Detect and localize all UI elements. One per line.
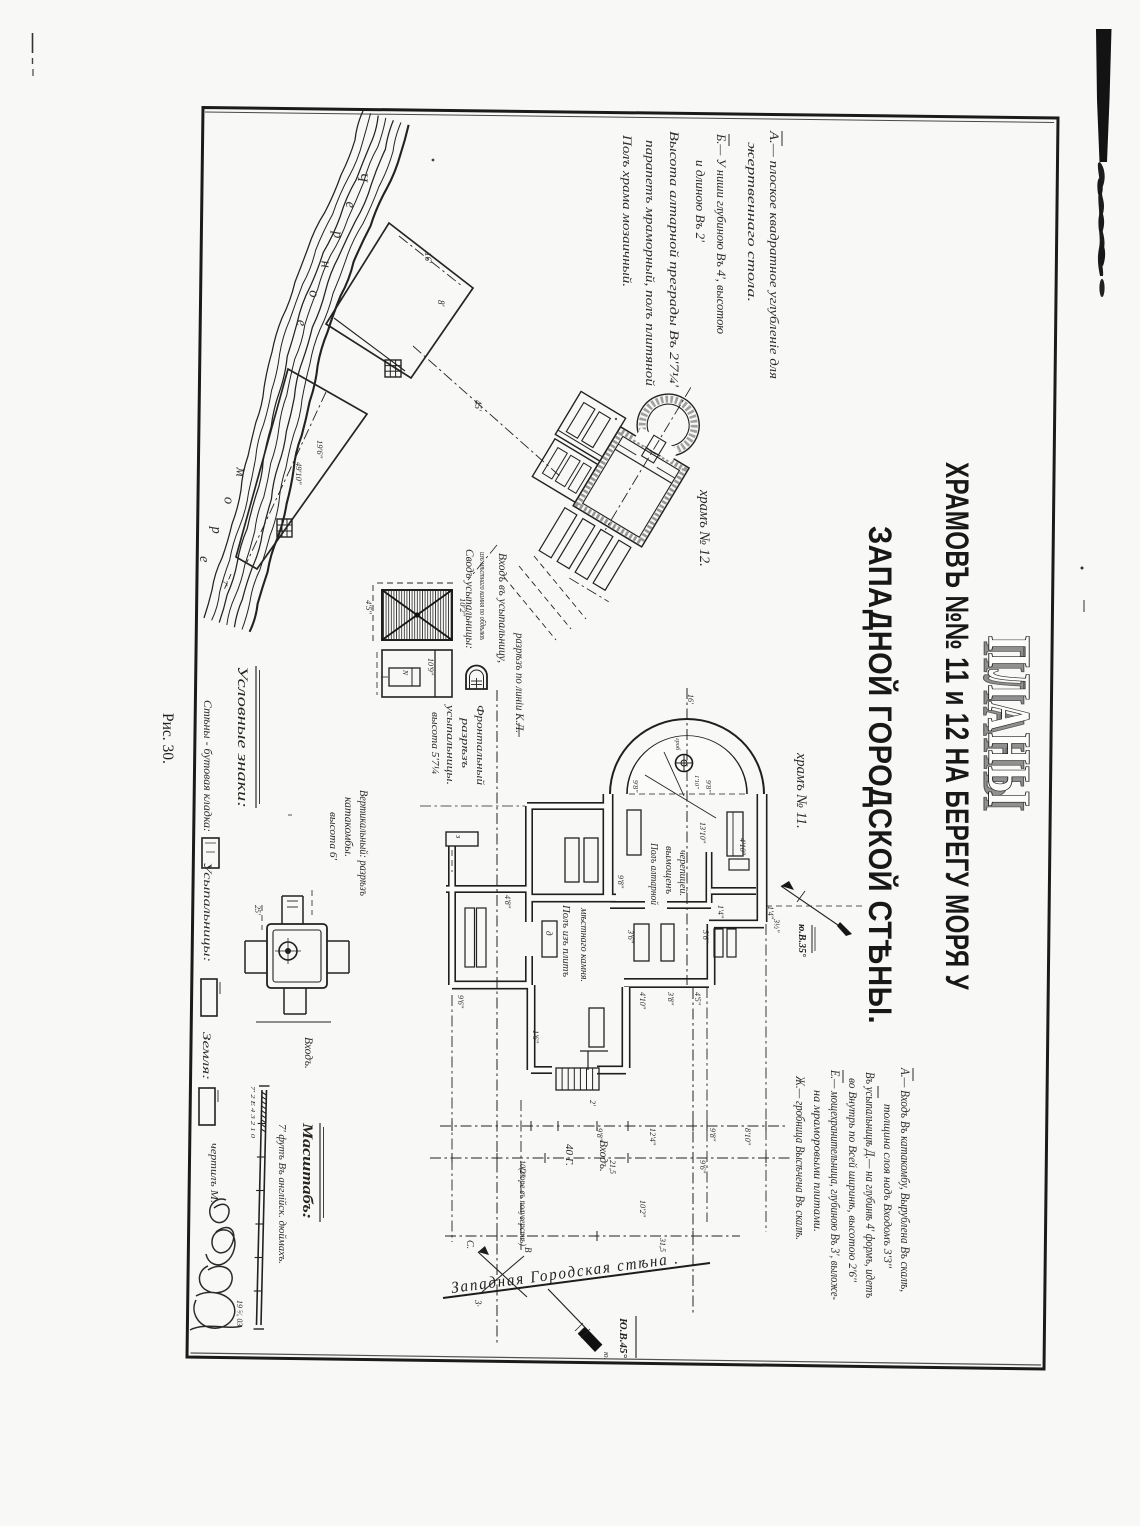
svg-text:3·: 3· — [473, 1299, 483, 1307]
svg-text:4'10'': 4'10'' — [738, 838, 747, 855]
svg-text:Условные знаки:: Условные знаки: — [234, 666, 250, 808]
svg-text:49'10'': 49'10'' — [294, 462, 304, 485]
svg-text:Высота алтарной преграды Въ: Высота алтарной преграды Въ 2'7¼' — [667, 131, 681, 387]
svg-text:и длиною Въ 2': и длиною Въ 2' — [693, 160, 707, 242]
svg-text:Е.— мощехранительница, глубино: Е.— мощехранительница, глубиною Въ 3', в… — [828, 1069, 842, 1300]
svg-text:N: N — [401, 669, 410, 676]
svg-text:вымощенъ: вымощенъ — [663, 846, 674, 894]
svg-text:21,5: 21,5 — [608, 1160, 617, 1174]
svg-text:1'4'': 1'4'' — [766, 906, 775, 919]
svg-text:о: о — [305, 290, 321, 297]
svg-text:9'6'': 9'6'' — [456, 995, 465, 1008]
svg-text:10'9'': 10'9'' — [426, 658, 435, 675]
svg-text:ХРАМОВЪ №№ 11 и 12 НА БЕРЕГ: ХРАМОВЪ №№ 11 и 12 НА БЕРЕГУ МОРЯ У — [939, 462, 975, 990]
svg-text:10'2'': 10'2'' — [638, 1200, 647, 1217]
svg-text:4'5'': 4'5'' — [364, 600, 374, 614]
svg-text:о: о — [220, 497, 236, 504]
svg-text:на мраморовыми плитами.: на мраморовыми плитами. — [811, 1090, 825, 1232]
svg-text:19'6'': 19'6'' — [315, 440, 325, 458]
svg-text:С.: С. — [464, 1240, 475, 1249]
svg-text:усыпальницы.: усыпальницы. — [444, 704, 456, 785]
svg-text:ю.В.35°: ю.В.35° — [796, 924, 807, 957]
svg-text:12'4'': 12'4'' — [648, 1128, 657, 1145]
svg-text:(море въ полуверстѣ): (море въ полуверстѣ) — [518, 1168, 528, 1246]
svg-text:8'10'': 8'10'' — [743, 1128, 752, 1145]
svg-text:25': 25' — [253, 905, 262, 915]
svg-text:Земля:: Земля: — [200, 1032, 214, 1080]
svg-text:1'10'': 1'10'' — [693, 775, 700, 790]
svg-text:9'8'': 9'8'' — [708, 1128, 717, 1141]
svg-text:9'6'': 9'6'' — [698, 1160, 707, 1173]
svg-text:Ж.— гробница Высѣчена Въ ск: Ж.— гробница Высѣчена Въ скалѣ. — [793, 1075, 807, 1240]
svg-text:19 ⁵⁄ₓ 03.: 19 ⁵⁄ₓ 03. — [235, 1300, 244, 1328]
svg-text:храмъ № 11.: храмъ № 11. — [793, 752, 809, 829]
svg-text:гроб: гроб — [674, 738, 681, 751]
svg-text:разрѣзъ по линіи К.Л.: разрѣзъ по линіи К.Л. — [513, 632, 525, 733]
svg-text:Въ усыпальницѣ Д.— на глубинѣ: Въ усыпальницѣ Д.— на глубинѣ 4' формъ, … — [863, 1072, 877, 1298]
svg-text:Входъ въ усыпальницу,: Входъ въ усыпальницу, — [496, 553, 510, 663]
svg-text:9'8'': 9'8'' — [704, 780, 713, 793]
svg-text:3½'': 3½'' — [772, 918, 781, 933]
svg-text:Рис. 30.: Рис. 30. — [159, 713, 176, 764]
svg-text:Ю.В.45°: Ю.В.45° — [617, 1317, 629, 1358]
svg-text:высота 5'7¼: высота 5'7¼ — [429, 712, 440, 775]
svg-text:1'4'': 1'4'' — [716, 905, 725, 918]
svg-text:д: д — [544, 931, 554, 936]
svg-text:2': 2' — [588, 1100, 597, 1106]
svg-text:Входъ.: Входъ. — [597, 1140, 609, 1172]
svg-text:4'5'': 4'5'' — [693, 992, 702, 1005]
svg-text:р: р — [208, 526, 224, 534]
svg-text:чертилъ М.: чертилъ М. — [208, 1143, 220, 1203]
svg-text:1'6'': 1'6'' — [531, 1030, 540, 1043]
svg-text:е: е — [293, 320, 309, 327]
svg-text:храмъ № 12.: храмъ № 12. — [696, 489, 712, 567]
svg-text:Ч: Ч — [354, 172, 370, 183]
svg-text:мѣстнаго камня.: мѣстнаго камня. — [578, 907, 590, 982]
svg-text:ю.: ю. — [602, 1352, 611, 1360]
svg-text:р: р — [330, 230, 346, 238]
svg-text:Входъ.: Входъ. — [302, 1037, 314, 1069]
svg-text:4'10'': 4'10'' — [638, 992, 647, 1009]
svg-text:3'8'': 3'8'' — [666, 991, 675, 1005]
svg-text:н: н — [318, 261, 334, 268]
svg-text:жертвеннаго стола.: жертвеннаго стола. — [745, 142, 759, 302]
svg-text:Усыпальницы:: Усыпальницы: — [201, 862, 215, 962]
svg-text:13'10'': 13'10'' — [698, 822, 707, 843]
svg-text:ЗАПАДНОЙ ГОРОДСКОЙ СТѢНЫ.: ЗАПАДНОЙ ГОРОДСКОЙ СТѢНЫ. — [862, 526, 900, 1024]
svg-text:45': 45' — [473, 400, 483, 412]
svg-text:7': 7' — [220, 580, 230, 586]
svg-text:м: м — [233, 466, 249, 476]
svg-text:5'6'': 5'6'' — [701, 930, 710, 943]
svg-text:Полъ изъ плитъ: Полъ изъ плитъ — [560, 904, 572, 977]
svg-text:3'6'': 3'6'' — [626, 929, 635, 943]
svg-text:з: з — [454, 834, 464, 839]
svg-text:черепицей.: черепицей. — [677, 850, 688, 896]
svg-text:7' 2 Ε 4 3 2 1 0: 7' 2 Ε 4 3 2 1 0 — [249, 1086, 256, 1138]
svg-text:40 Г.: 40 Г. — [563, 1144, 575, 1166]
svg-text:Полъ алтарной: Полъ алтарной — [648, 842, 659, 905]
svg-text:е: е — [342, 202, 358, 209]
svg-text:9'8'': 9'8'' — [616, 875, 625, 888]
svg-text:толщина слоя надъ Входомъ 3'3': толщина слоя надъ Входомъ 3'3'' — [881, 1104, 895, 1268]
svg-text:4'8'': 4'8'' — [503, 895, 512, 908]
svg-text:изъ мѣстнаго камня по обдѣлкѣ: изъ мѣстнаго камня по обдѣлкѣ — [478, 552, 487, 641]
svg-text:разрѣзъ: разрѣзъ — [459, 717, 471, 769]
svg-text:Сводъ усыпальницы:: Сводъ усыпальницы: — [463, 549, 475, 649]
svg-text:А.— Входъ Въ катакомбу, Вырубл: А.— Входъ Въ катакомбу, Вырублена Въ ска… — [898, 1067, 912, 1292]
svg-text:парапетъ мраморный, полъ плитя: парапетъ мраморный, полъ плитяной — [643, 140, 657, 387]
svg-text:16': 16' — [686, 694, 695, 704]
svg-text:е: е — [196, 556, 212, 563]
svg-text:ПЛАНЫ: ПЛАНЫ — [976, 636, 1042, 808]
svg-text:высота 6': высота 6' — [327, 812, 338, 861]
svg-text:Б.— У ниши глубиною Въ 4', выс: Б.— У ниши глубиною Въ 4', высотою — [714, 133, 728, 334]
svg-text:9'8'': 9'8'' — [631, 780, 640, 793]
svg-text:9'8'': 9'8'' — [595, 1128, 604, 1141]
svg-text:В: В — [523, 1247, 533, 1253]
svg-text:во Внутрь по Всей ширинѣ, высо: во Внутрь по Всей ширинѣ, высотою 2'6'' — [846, 1078, 860, 1282]
svg-text:катакомбы.: катакомбы. — [342, 797, 354, 857]
svg-text:Вертикальный: разрѣзъ: Вертикальный: разрѣзъ — [357, 790, 370, 896]
svg-text:Фронтальный: Фронтальный — [474, 705, 486, 786]
svg-text:Стѣны - бутовая кладка:: Стѣны - бутовая кладка: — [201, 700, 215, 832]
svg-text:А.— плоское квадратное углубле: А.— плоское квадратное углубленіе для — [767, 130, 781, 380]
svg-text:8': 8' — [436, 300, 446, 308]
svg-text:7' футъ Въ англійск. дюймахъ.: 7' футъ Въ англійск. дюймахъ. — [276, 1124, 287, 1264]
svg-text:Полъ храма мозаичный.: Полъ храма мозаичный. — [620, 134, 634, 287]
svg-text:16': 16' — [423, 252, 433, 264]
svg-text:Масштабъ:: Масштабъ: — [299, 1122, 315, 1219]
